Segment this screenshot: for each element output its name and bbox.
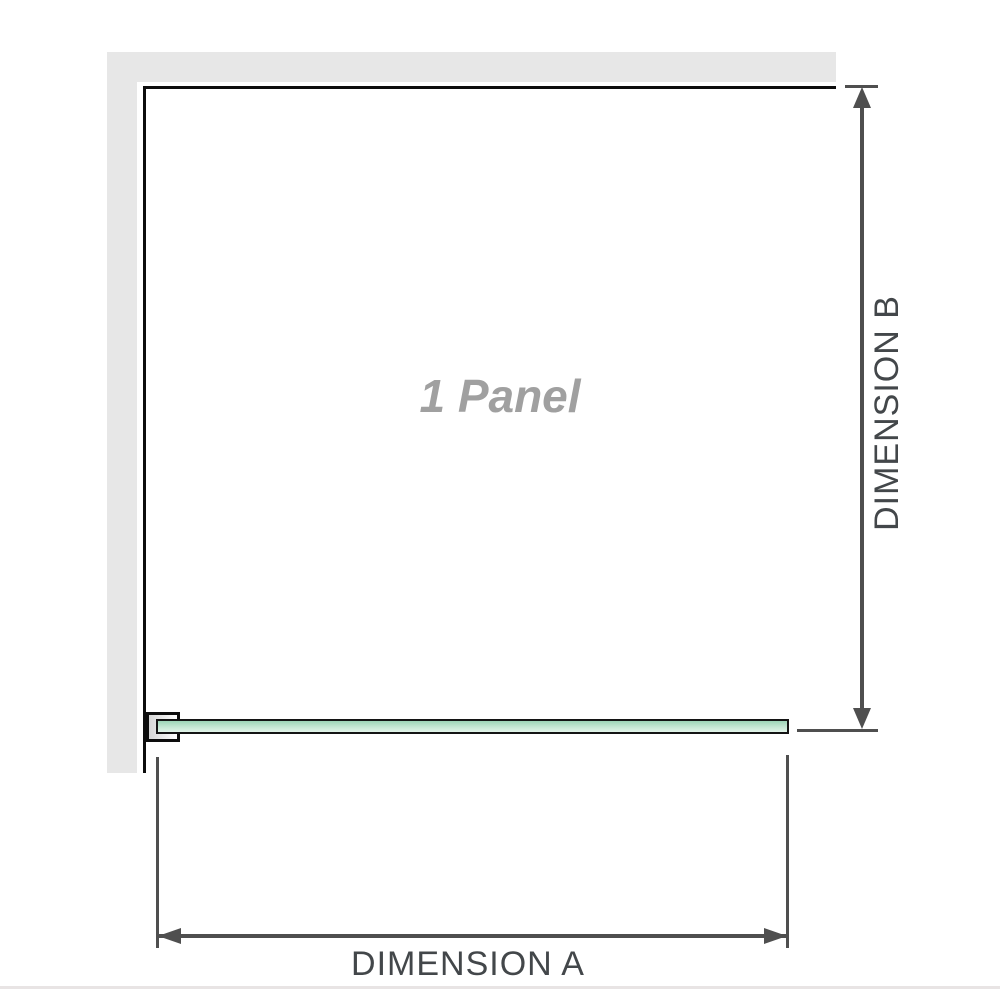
wall-top (107, 52, 836, 82)
dimension-a-label: DIMENSION A (351, 947, 585, 981)
arrowhead-right-icon (764, 928, 787, 944)
page-bottom-rule (0, 986, 1000, 989)
arrowhead-up-icon (853, 87, 871, 108)
dimension-b-label: DIMENSION B (870, 295, 904, 531)
wall-inner-face-top-line (143, 86, 836, 89)
dimension-a-right-extension-line (786, 755, 789, 948)
wall-inner-face-left-line (143, 86, 146, 773)
dimension-a-left-extension-line (156, 757, 159, 948)
dimension-b-bottom-tick (797, 729, 878, 732)
shower-panel-diagram: 1 Panel DIMENSION B DIMENSION A (0, 0, 1000, 1000)
panel-count-label: 1 Panel (419, 369, 580, 423)
dimension-b-line (860, 104, 864, 710)
arrowhead-down-icon (853, 708, 871, 729)
wall-left (107, 52, 137, 773)
dimension-a-line (158, 934, 787, 938)
glass-panel (156, 719, 789, 734)
arrowhead-left-icon (158, 928, 181, 944)
